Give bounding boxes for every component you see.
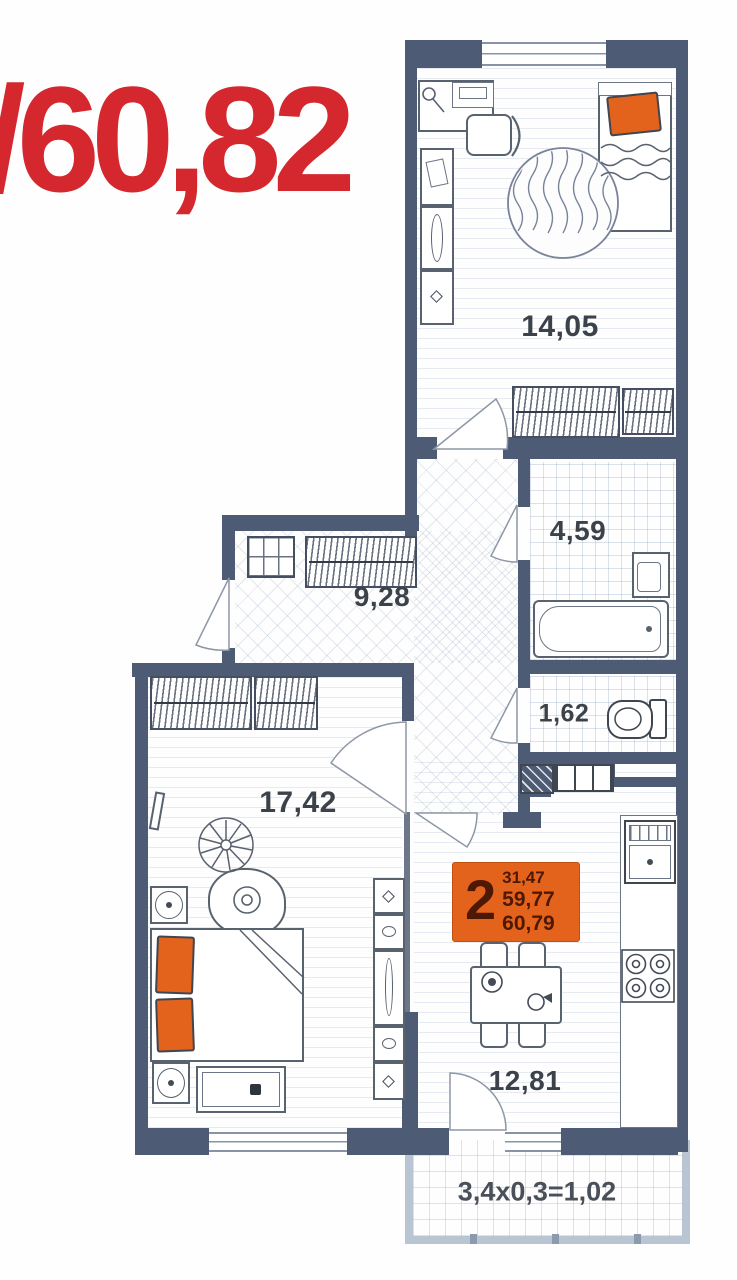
wall-segment	[518, 674, 530, 688]
rooms-count: 2	[453, 872, 502, 932]
total-area: 60,79	[502, 912, 555, 936]
wardrobe	[150, 676, 252, 730]
desk-chair	[466, 114, 512, 156]
window	[209, 1132, 347, 1152]
dining-chair	[480, 942, 508, 968]
wall-segment	[414, 1128, 449, 1155]
wardrobe	[622, 388, 674, 435]
duct-shaft	[520, 764, 554, 794]
dining-chair	[518, 1022, 546, 1048]
wall-segment	[135, 663, 148, 1141]
bathtub-drain	[646, 626, 652, 632]
room-label-wc: 1,62	[539, 700, 590, 729]
wall-segment	[222, 528, 235, 580]
wardrobe	[512, 386, 620, 438]
fridge-top	[629, 825, 671, 841]
wall-segment	[518, 560, 530, 666]
wall-segment	[347, 1128, 416, 1155]
bench-inner	[202, 1072, 280, 1107]
wall-segment	[135, 1128, 209, 1155]
wall-segment	[222, 515, 419, 531]
wardrobe	[254, 676, 318, 730]
wall-segment	[132, 663, 410, 677]
balcony-mullion	[470, 1234, 477, 1244]
shelf-glyph	[385, 958, 393, 1016]
room-label-bedroom1: 14,05	[521, 310, 599, 344]
wall-segment	[614, 777, 676, 787]
wall-segment	[402, 663, 414, 721]
side-table-dot	[166, 902, 172, 908]
fridge-dot	[647, 859, 653, 865]
shelf-glyph	[382, 1038, 396, 1049]
dining-chair	[518, 942, 546, 968]
dining-table	[470, 966, 562, 1024]
printer-tray	[459, 87, 487, 99]
shelf-glyph	[382, 926, 396, 937]
shoe-shelf	[247, 536, 295, 578]
wall-segment	[518, 660, 678, 674]
balcony-mullion	[552, 1234, 559, 1244]
wall-segment	[503, 812, 541, 828]
balcony-wall	[682, 1140, 690, 1244]
wall-segment	[561, 1128, 678, 1155]
balcony-wall	[405, 1140, 413, 1244]
pillow	[155, 997, 195, 1052]
bench-tv	[250, 1084, 261, 1095]
pillow	[155, 935, 195, 994]
apartment-info-badge: 2 31,47 59,77 60,79	[452, 862, 580, 942]
bathtub-inner	[539, 606, 661, 652]
balcony-wall	[405, 1236, 690, 1244]
balcony-mullion	[634, 1234, 641, 1244]
washbasin-bowl	[637, 562, 661, 592]
room-label-bedroom2: 17,42	[259, 786, 337, 820]
area-no-balcony: 59,77	[502, 888, 555, 912]
armchair	[208, 868, 286, 936]
pillow	[606, 91, 662, 136]
door-swing-arc	[196, 578, 229, 650]
wall-segment	[405, 40, 417, 542]
mirror	[431, 214, 443, 262]
wall-segment	[518, 452, 530, 507]
room-label-bathroom: 4,59	[550, 515, 607, 547]
balcony-dimension-label: 3,4x0,3=1,02	[458, 1177, 616, 1208]
wall-segment	[527, 752, 677, 764]
living-area: 31,47	[502, 868, 555, 887]
dining-chair	[480, 1022, 508, 1048]
room-label-kitchen: 12,81	[489, 1065, 562, 1097]
window	[482, 42, 606, 66]
wall-segment	[417, 437, 437, 459]
total-area-overlay: /60,82	[0, 64, 347, 214]
floor-plan: 14,05 4,59 9,28 1,62 17,42 12,81 3,4x0,3…	[0, 0, 737, 1280]
room-label-hallway: 9,28	[354, 581, 411, 613]
window	[505, 1132, 561, 1152]
shaft-cells	[554, 764, 614, 792]
side-table-dot	[168, 1080, 174, 1086]
